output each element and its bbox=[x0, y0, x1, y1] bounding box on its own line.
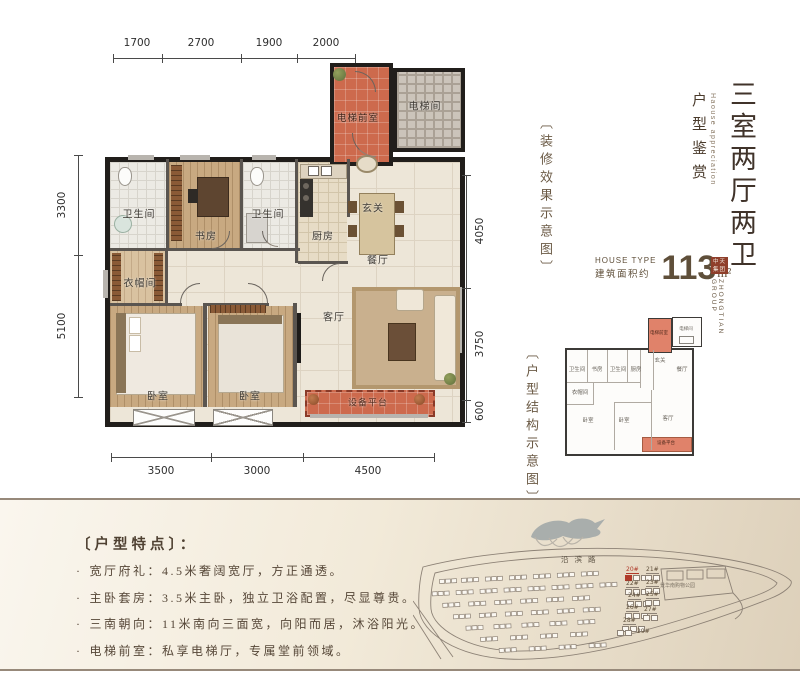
dim-left-1: 3300 bbox=[56, 192, 68, 219]
chair-icon bbox=[348, 225, 357, 237]
label-bath1: 卫生间 bbox=[123, 206, 156, 221]
window bbox=[180, 155, 210, 160]
feature-item: 电梯前室：私享电梯厅，专属堂前领域。 bbox=[76, 642, 425, 659]
dim-top-3: 1900 bbox=[256, 37, 283, 49]
building-27-units bbox=[643, 615, 658, 621]
caption-structure: 〔户型结构示意图〕 bbox=[522, 346, 541, 508]
main-floorplan: 卫生间 书房 卫生间 厨房 玄关 餐厅 衣帽间 卧室 卧室 客厅 设备平台 电梯… bbox=[100, 55, 475, 427]
page-subtitle: 户型鉴赏 bbox=[688, 92, 709, 188]
area-value: 113 bbox=[661, 254, 716, 283]
mini-label-bedroom2: 卧室 bbox=[618, 416, 629, 424]
plant-icon bbox=[333, 68, 346, 81]
mini-label-cloak: 衣帽间 bbox=[572, 388, 589, 396]
mini-label-dining: 餐厅 bbox=[676, 365, 687, 373]
label-lobby: 电梯前室 bbox=[337, 110, 379, 124]
feature-item: 三南朝向：11米南向三面宽，向阳而居，沐浴阳光。 bbox=[76, 615, 425, 632]
label-dining: 餐厅 bbox=[367, 252, 389, 267]
sink-icon bbox=[308, 166, 319, 176]
platform-plant-icon bbox=[414, 394, 425, 405]
label-kitchen: 厨房 bbox=[312, 228, 334, 243]
label-entry: 玄关 bbox=[362, 200, 384, 215]
building-29-units bbox=[617, 630, 632, 636]
label-cloak: 衣帽间 bbox=[124, 275, 157, 290]
headboard-icon bbox=[218, 315, 282, 324]
window bbox=[252, 155, 276, 160]
feature-item: 宽厅府礼：4.5米奢阔宽厅，方正通透。 bbox=[76, 562, 425, 579]
dim-line-right bbox=[466, 175, 467, 422]
building-label-27: 27# bbox=[644, 606, 657, 614]
mini-elevator-car bbox=[679, 336, 694, 344]
brand-group-name: ZHONGTIAN GROUP bbox=[710, 279, 724, 357]
page-subtitle-en: Haouse appreciation bbox=[709, 93, 716, 186]
headboard-icon bbox=[116, 313, 126, 393]
wall bbox=[165, 251, 168, 305]
dim-line-top bbox=[113, 58, 355, 59]
mini-label-entry: 玄关 bbox=[654, 356, 665, 364]
wardrobe-icon bbox=[210, 305, 266, 313]
dim-right-1: 4050 bbox=[474, 218, 486, 245]
dim-line-bottom bbox=[111, 457, 434, 458]
building-label-23: 23# bbox=[646, 579, 659, 587]
sculpture-icon bbox=[531, 519, 605, 547]
dim-right-3: 600 bbox=[474, 401, 486, 421]
building-label-25: 25# bbox=[646, 591, 659, 599]
bay-window bbox=[133, 409, 195, 426]
dim-line-left bbox=[78, 155, 79, 397]
dim-top-2: 2700 bbox=[188, 37, 215, 49]
road-label: 沿滨路 bbox=[561, 554, 602, 565]
dim-bottom-1: 3500 bbox=[148, 465, 175, 477]
house-type-label: HOUSE TYPE bbox=[595, 256, 656, 265]
building-label-29: 29# bbox=[637, 628, 650, 635]
bay-window bbox=[213, 409, 273, 426]
platform-plant-icon bbox=[308, 394, 319, 405]
label-bedroom2: 卧室 bbox=[239, 388, 261, 403]
site-map-drawing bbox=[413, 505, 800, 673]
dim-bottom-3: 4500 bbox=[355, 465, 382, 477]
toilet-icon bbox=[118, 167, 132, 186]
features-list: 宽厅府礼：4.5米奢阔宽厅，方正通透。 主卧套房：3.5米主卧，独立卫浴配置，尽… bbox=[76, 562, 425, 668]
caption-render: 〔装修效果示意图〕 bbox=[536, 116, 555, 278]
mini-label-bedroom1: 卧室 bbox=[582, 416, 593, 424]
label-bedroom1: 卧室 bbox=[147, 388, 169, 403]
window bbox=[103, 270, 108, 298]
mini-label-study: 书房 bbox=[591, 365, 602, 373]
wall bbox=[166, 159, 169, 249]
sink-icon bbox=[321, 166, 332, 176]
brochure-page: 卫生间 书房 卫生间 厨房 玄关 餐厅 衣帽间 卧室 卧室 客厅 设备平台 电梯… bbox=[0, 0, 800, 679]
chair-icon bbox=[395, 201, 404, 213]
park-label: 景华南购物公园 bbox=[660, 582, 695, 589]
coffee-table-icon bbox=[388, 323, 416, 361]
mini-label-bath1: 卫生间 bbox=[569, 365, 586, 373]
mini-label-bath2: 卫生间 bbox=[610, 365, 627, 373]
chair-icon bbox=[188, 189, 198, 203]
tv-icon bbox=[297, 313, 301, 363]
wall bbox=[298, 261, 348, 264]
building-label-20: 20# bbox=[626, 566, 639, 574]
wall bbox=[203, 303, 207, 407]
label-platform: 设备平台 bbox=[348, 396, 388, 409]
dim-top-4: 2000 bbox=[313, 37, 340, 49]
plant-icon bbox=[444, 373, 456, 385]
closet-rack-icon bbox=[112, 253, 121, 301]
entry-rug-icon bbox=[356, 155, 378, 173]
label-elevator: 电梯间 bbox=[409, 98, 442, 113]
label-study: 书房 bbox=[195, 228, 217, 243]
wall bbox=[110, 248, 300, 251]
label-living: 客厅 bbox=[323, 309, 345, 324]
building-label-24: 24# bbox=[628, 592, 641, 600]
wall bbox=[110, 303, 182, 306]
mini-label-lobby: 电梯前室 bbox=[650, 330, 668, 336]
building-label-26: 26# bbox=[626, 604, 639, 612]
wall bbox=[240, 159, 243, 249]
mini-label-elevator: 电梯间 bbox=[679, 326, 693, 332]
bookshelf-icon bbox=[171, 165, 182, 241]
dim-top-1: 1700 bbox=[124, 37, 151, 49]
site-map: 沿滨路 景华南购物公园 20# 21# 22# 23# 24# 25# 26# … bbox=[413, 505, 800, 673]
chair-icon bbox=[348, 201, 357, 213]
mini-label-kitchen: 厨房 bbox=[630, 365, 641, 373]
mini-label-platform: 设备平台 bbox=[657, 440, 675, 446]
mini-floorplan: 卫生间 书房 卫生间 厨房 玄关 餐厅 衣帽间 卧室 卧室 客厅 电梯前室 电梯… bbox=[556, 312, 708, 460]
dim-left-2: 5100 bbox=[56, 313, 68, 340]
dim-right-2: 3750 bbox=[474, 331, 486, 358]
area-label: 建筑面积约 bbox=[595, 266, 656, 280]
building-label-28: 28# bbox=[623, 617, 636, 625]
burner-icon bbox=[303, 195, 309, 201]
mini-label-living: 客厅 bbox=[662, 414, 673, 422]
desk-icon bbox=[197, 177, 229, 217]
armchair-icon bbox=[396, 289, 424, 311]
building-label-21: 21# bbox=[646, 566, 659, 574]
burner-icon bbox=[303, 183, 309, 189]
window bbox=[310, 414, 428, 418]
pillow-icon bbox=[129, 335, 141, 352]
chair-icon bbox=[395, 225, 404, 237]
window bbox=[128, 155, 154, 160]
toilet-icon bbox=[250, 167, 264, 186]
page-title: 三室两厅两卫 bbox=[722, 80, 761, 272]
brand-seal: 中天集团 bbox=[711, 257, 728, 274]
building-label-22: 22# bbox=[626, 580, 639, 588]
features-heading: 〔户型特点〕： bbox=[76, 533, 198, 554]
bed-icon bbox=[116, 313, 196, 395]
label-bath2: 卫生间 bbox=[252, 206, 285, 221]
dim-bottom-2: 3000 bbox=[244, 465, 271, 477]
bed-icon bbox=[218, 315, 284, 393]
pillow-icon bbox=[129, 317, 141, 334]
sofa-icon bbox=[434, 295, 456, 381]
feature-item: 主卧套房：3.5米主卧，独立卫浴配置，尽显尊贵。 bbox=[76, 589, 425, 606]
